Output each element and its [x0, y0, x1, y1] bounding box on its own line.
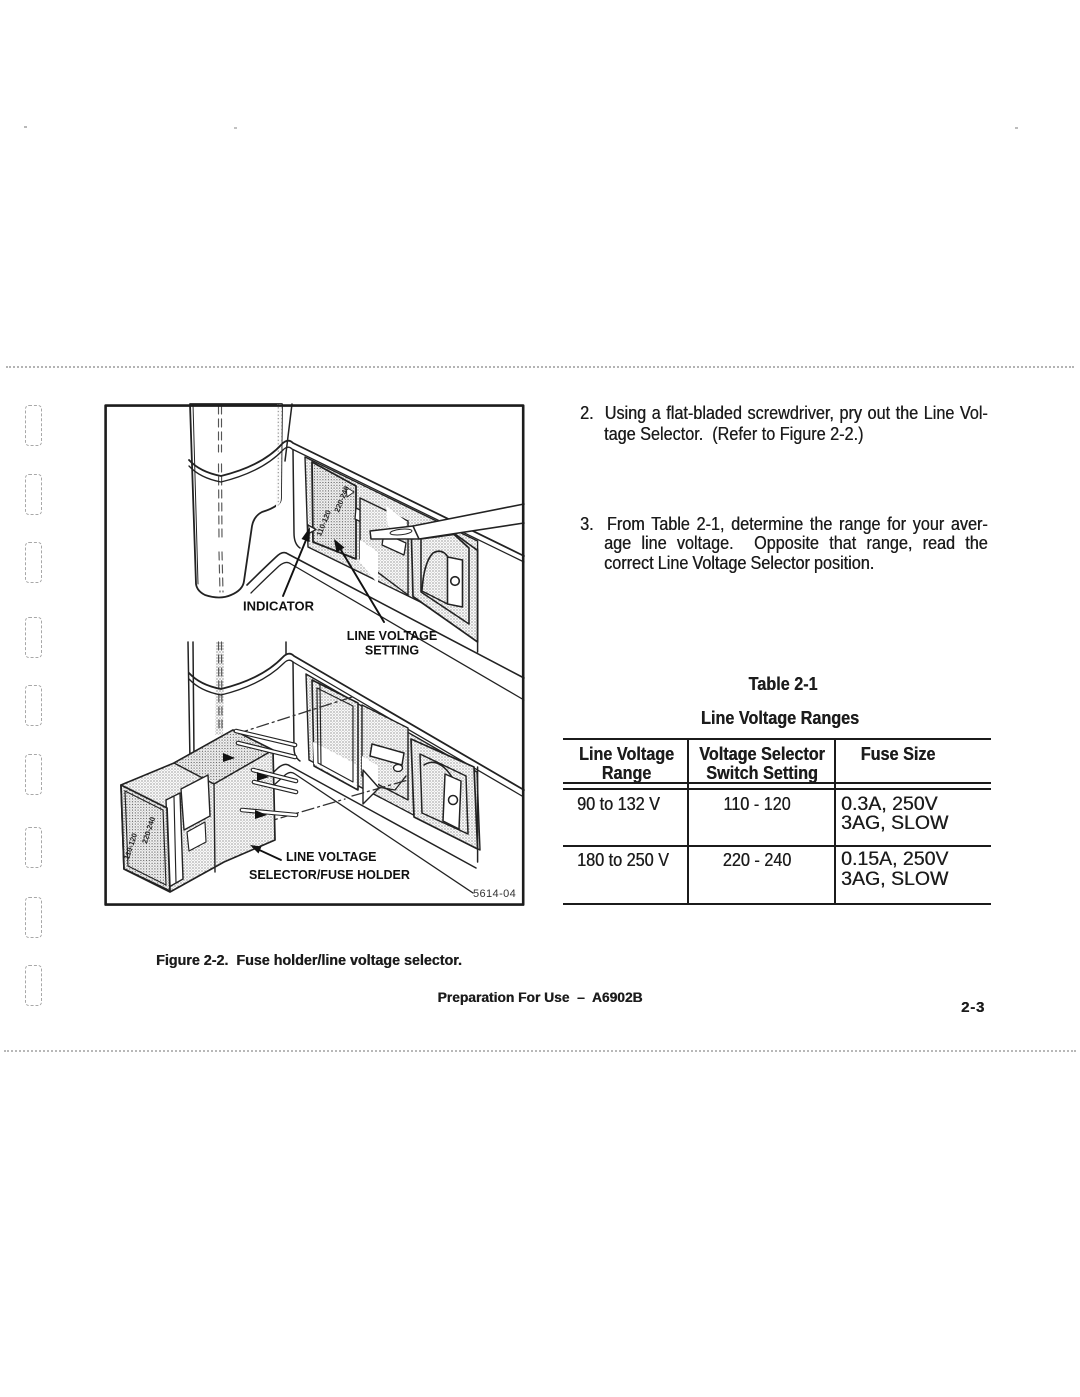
svg-text:SETTING: SETTING: [365, 644, 419, 658]
svg-text:INDICATOR: INDICATOR: [243, 599, 315, 614]
svg-text:SELECTOR/FUSE HOLDER: SELECTOR/FUSE HOLDER: [249, 868, 410, 882]
svg-text:LINE VOLTAGE: LINE VOLTAGE: [286, 850, 377, 864]
svg-text:LINE VOLTAGE: LINE VOLTAGE: [347, 629, 438, 643]
svg-text:5614-04: 5614-04: [473, 888, 516, 900]
